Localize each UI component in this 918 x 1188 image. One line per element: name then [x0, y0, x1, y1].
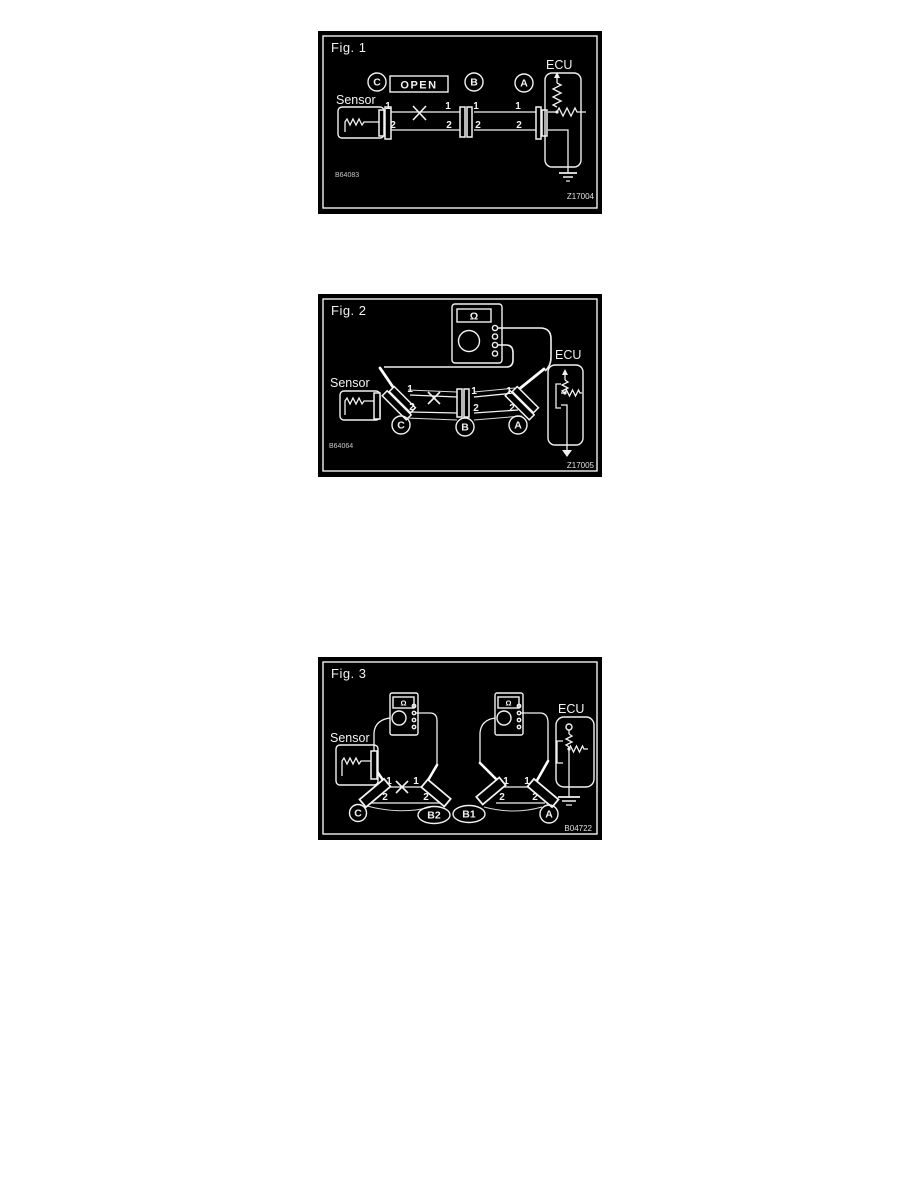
fig3-svg: Fig. 3 Ω Ω	[318, 657, 602, 840]
fig1-ecu-junction-dot	[555, 110, 558, 113]
fig3-right-meter-dial	[497, 711, 511, 725]
fig1-title: Fig. 1	[331, 40, 367, 55]
fig2-conn-b-letter: B	[461, 422, 469, 434]
fig2-meter-terminal	[492, 334, 497, 339]
fig1-pin2-label: 2	[390, 120, 396, 131]
fig2-pin1-label: 1	[506, 386, 512, 397]
fig3-conn-a-letter: A	[545, 809, 553, 821]
fig2-sensor-box	[340, 391, 380, 420]
fig3-sensor-resistor-symbol	[342, 758, 372, 776]
fig2-sensor-connector-bar	[374, 393, 380, 419]
fig2-reference-code: Z17005	[567, 461, 595, 470]
fig3-sensor-connector-bar	[371, 751, 377, 779]
fig2-conn-c-letter: C	[397, 420, 405, 432]
fig3-ecu-box	[556, 717, 594, 797]
fig2-ecu-label: ECU	[555, 348, 581, 362]
fig3-pin1-label: 1	[503, 776, 509, 787]
fig1-ground-symbol	[559, 167, 577, 181]
fig3-conn-b2-letter: B2	[427, 810, 441, 822]
fig3-ground-symbol	[558, 797, 580, 805]
fig2-pin2-label: 2	[509, 403, 515, 414]
fig1-sensor-box	[338, 107, 384, 138]
fig3-ecu-supply-terminal	[566, 724, 572, 730]
fig3-pin2-label: 2	[532, 792, 538, 803]
fig3-conn-c-letter: C	[354, 808, 362, 820]
fig3-ecu-connector-bracket	[557, 741, 563, 763]
fig2-meter-terminal	[492, 325, 497, 330]
fig1-ecu-pullup-resistor-symbol	[553, 77, 561, 107]
fig3-ecu-label: ECU	[558, 702, 584, 716]
fig3-ecu-pullup-resistor-symbol	[566, 734, 572, 747]
fig1-break-x-mark	[413, 106, 426, 120]
fig1-conn-a-letter: A	[520, 78, 528, 90]
fig1-pin2-label: 2	[475, 120, 481, 131]
fig3-sensor-label: Sensor	[330, 731, 370, 745]
fig2-connector-b-bars	[457, 389, 469, 417]
fig1-sensor-resistor-symbol	[345, 119, 379, 132]
figure-2-resistance-check-diagram: Fig. 2 Ω Sensor	[318, 294, 602, 477]
fig1-pin1-label: 1	[385, 101, 391, 112]
fig2-test-probe-a	[518, 369, 544, 390]
fig2-title: Fig. 2	[331, 303, 367, 318]
fig2-meter-terminal	[492, 351, 497, 356]
fig3-ecu-series-resistor-symbol	[569, 746, 588, 752]
fig2-ohm-symbol: Ω	[470, 311, 478, 323]
fig3-left-meter-dial	[392, 711, 406, 725]
fig1-illustration-code: B64083	[335, 172, 359, 179]
fig3-right-meter-lead-right	[521, 713, 548, 761]
fig2-pin1-label: 1	[471, 386, 477, 397]
fig2-ecu-supply-arrow	[562, 369, 568, 375]
fig1-open-indicator-label: OPEN	[400, 80, 437, 92]
fig2-meter-dial	[459, 331, 480, 352]
fig2-ecu-junction-dot	[563, 391, 566, 394]
fig1-pin1-label: 1	[515, 101, 521, 112]
figure-3-dual-meter-check-diagram: Fig. 3 Ω Ω	[318, 657, 602, 840]
fig1-conn-b-letter: B	[470, 77, 478, 89]
fig3-pin1-label: 1	[386, 776, 392, 787]
fig3-conn-b1-letter: B1	[462, 809, 476, 821]
fig2-illustration-code: B64064	[329, 443, 353, 450]
figure-1-open-circuit-diagram: Fig. 1 Sensor C OPEN B A	[318, 31, 602, 214]
fig1-connector-b-bars	[460, 107, 472, 137]
fig3-pin1-label: 1	[413, 776, 419, 787]
fig1-pin1-label: 1	[473, 101, 479, 112]
fig3-meter-terminal	[412, 718, 415, 721]
fig2-break-x-mark	[428, 392, 440, 404]
fig2-pin1-label: 1	[407, 384, 413, 395]
fig2-ecu-connector-bracket	[556, 384, 561, 408]
fig2-meter-lead-right	[498, 328, 551, 371]
fig3-title: Fig. 3	[331, 666, 367, 681]
fig2-sensor-label: Sensor	[330, 376, 370, 390]
fig3-meter-terminal	[517, 718, 520, 721]
fig2-pin2-label: 2	[473, 403, 479, 414]
fig1-conn-c-letter: C	[373, 77, 381, 89]
fig3-reference-code: B04722	[564, 824, 592, 833]
fig2-meter-terminal	[492, 342, 497, 347]
fig1-ecu-ground-wire	[548, 130, 568, 167]
fig3-pin2-label: 2	[423, 792, 429, 803]
fig3-pin2-label: 2	[382, 792, 388, 803]
fig2-conn-a-letter: A	[514, 420, 522, 432]
fig2-ground-symbol	[562, 445, 572, 457]
fig2-pin2-label: 2	[409, 402, 415, 413]
fig3-right-ohm-symbol: Ω	[505, 699, 511, 708]
fig3-meter-terminal	[517, 725, 520, 728]
fig1-ecu-box	[545, 72, 586, 167]
fig3-pin2-label: 2	[499, 792, 505, 803]
fig2-sensor-resistor-symbol	[345, 398, 374, 415]
fig3-meter-terminal	[412, 725, 415, 728]
fig3-meter-terminal	[517, 711, 520, 714]
fig3-multimeter-left: Ω	[390, 693, 418, 735]
manual-page: Fig. 1 Sensor C OPEN B A	[0, 0, 918, 1188]
fig2-ecu-series-resistor-symbol	[565, 390, 582, 396]
fig3-left-ohm-symbol: Ω	[400, 699, 406, 708]
fig1-pin2-label: 2	[516, 120, 522, 131]
fig2-ecu-ground-wire	[561, 405, 567, 445]
fig1-svg: Fig. 1 Sensor C OPEN B A	[318, 31, 602, 214]
fig2-ecu-box	[548, 365, 583, 445]
fig3-right-meter-lead-left	[480, 718, 495, 763]
fig2-svg: Fig. 2 Ω Sensor	[318, 294, 602, 477]
fig3-left-meter-lead-right	[416, 713, 437, 765]
fig1-sensor-label: Sensor	[336, 93, 376, 107]
fig3-pin1-label: 1	[524, 776, 530, 787]
fig2-test-probe-c	[380, 368, 395, 390]
fig1-reference-code: Z17004	[567, 192, 595, 201]
fig2-multimeter: Ω	[452, 304, 502, 363]
fig3-meter-terminal	[412, 711, 415, 714]
fig3-sensor-box	[336, 745, 378, 785]
fig1-pin1-label: 1	[445, 101, 451, 112]
fig3-multimeter-right: Ω	[495, 693, 523, 735]
fig1-ecu-label: ECU	[546, 58, 572, 72]
fig1-pin2-label: 2	[446, 120, 452, 131]
fig3-right-harness-bottom-edge	[484, 807, 542, 811]
